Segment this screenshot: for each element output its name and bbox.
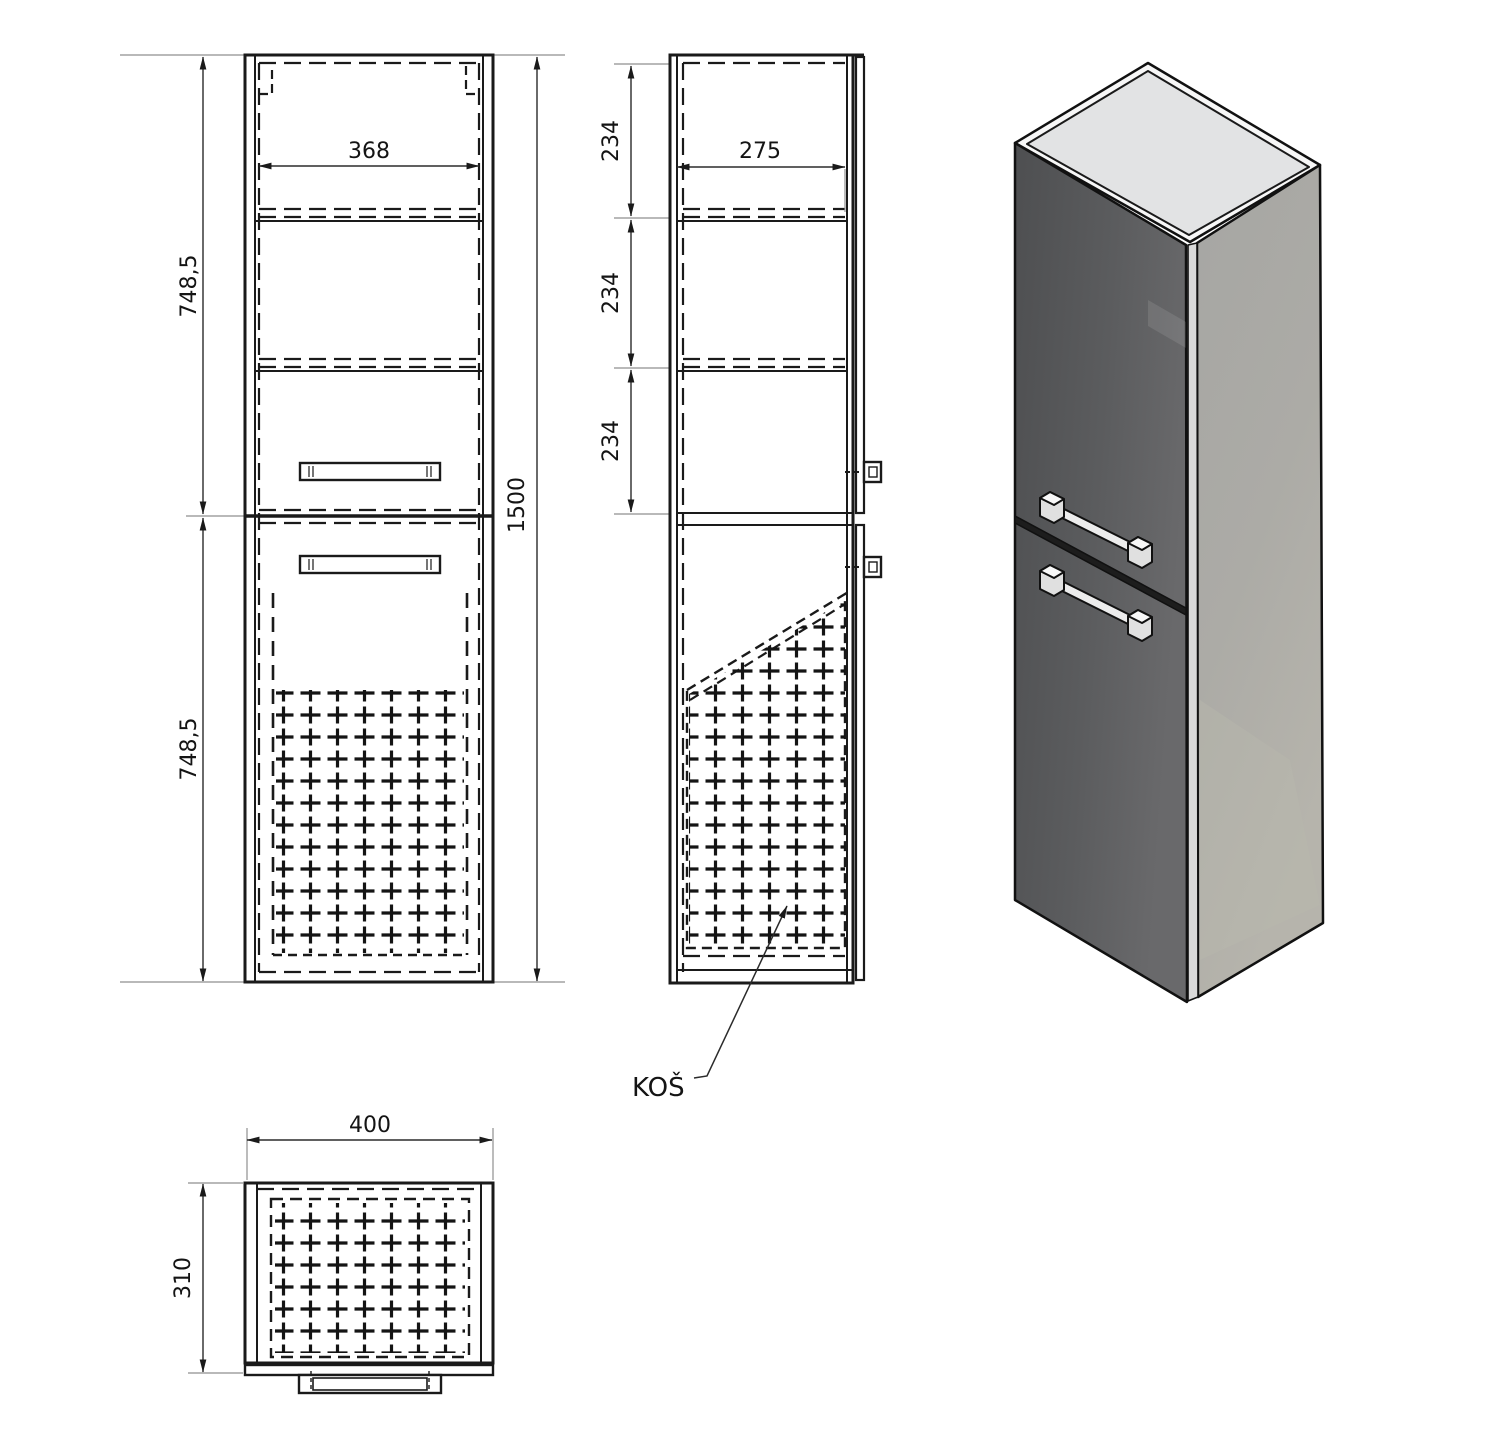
top-view: 400 310	[171, 1113, 493, 1393]
top-door-panel	[245, 1365, 493, 1375]
top-basket-mesh	[275, 1203, 465, 1353]
iso-front-edge	[1188, 243, 1198, 1001]
dim-section-top: 234	[599, 120, 624, 162]
front-lower-handle	[300, 556, 440, 573]
front-view: 368 748,5 748,5 1500	[120, 55, 565, 982]
dim-lower-height: 748,5	[177, 718, 202, 781]
top-basket	[271, 1199, 469, 1357]
dim-inner-width: 368	[348, 139, 390, 164]
basket-label: KOŠ	[632, 1071, 685, 1103]
dim-section-bottom: 234	[599, 420, 624, 462]
dim-outer-width: 400	[349, 1113, 391, 1138]
side-view: 234 234 234 275 KOŠ	[599, 55, 881, 1103]
dim-section-middle: 234	[599, 272, 624, 314]
dim-outer-depth: 310	[171, 1257, 196, 1299]
dim-total-height: 1500	[505, 477, 530, 533]
cabinet-drawing-canvas: 368 748,5 748,5 1500	[0, 0, 1500, 1450]
iso-view	[1015, 63, 1323, 1002]
top-handle	[299, 1371, 441, 1393]
side-door-profile	[856, 57, 864, 980]
front-upper-handle	[300, 463, 440, 480]
front-basket-mesh	[276, 690, 464, 953]
dim-inner-depth: 275	[739, 139, 781, 164]
dim-upper-height: 748,5	[177, 255, 202, 318]
technical-drawing-page: 368 748,5 748,5 1500	[0, 0, 1500, 1450]
